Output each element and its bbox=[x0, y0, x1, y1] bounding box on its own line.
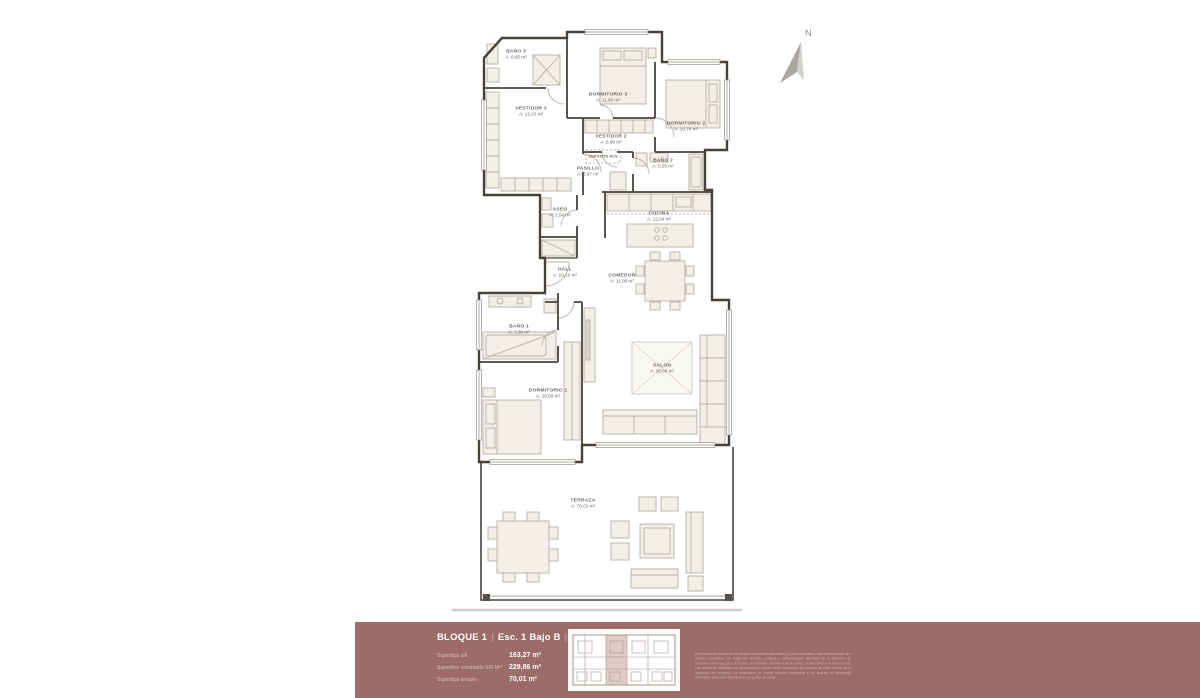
room-label-pasillo: PASILLO A: 2,87 m² bbox=[577, 165, 599, 177]
room-label-dormitorio-1: DORMITORIO 1 A: 20,58 m² bbox=[529, 387, 568, 399]
room-label-aseo: ASEO A: 2,54 m² bbox=[549, 206, 570, 218]
spec-label: Superficie terraza bbox=[437, 677, 476, 683]
spec-label: Superficie construida S/R M²* bbox=[437, 665, 503, 671]
room-label-vestidor-2: VESTIDOR 2 A: 6,49 m² bbox=[595, 133, 626, 145]
spec-value: 163,27 m² bbox=[509, 652, 541, 659]
room-label-vestidor-3: VESTIDOR 3 A: 13,20 m² bbox=[515, 105, 546, 117]
spec-value: 229,86 m² bbox=[509, 664, 541, 671]
furniture-terraza bbox=[488, 497, 703, 591]
room-label-hall: HALL A: 10,10 m² bbox=[553, 266, 577, 278]
room-label-bano-2: BAÑO 2 A: 5,55 m² bbox=[652, 157, 673, 169]
room-label-dormitorio-2: DORMITORIO 2 A: 10,70 m² bbox=[667, 120, 706, 132]
furniture-salon bbox=[584, 308, 725, 445]
furniture-vestidor-2 bbox=[585, 120, 653, 133]
page: N BAÑO 3 A: 6,65 m² DORMITORIO 3 A: 11,6… bbox=[0, 0, 1200, 698]
terrace-railing bbox=[452, 594, 742, 610]
key-plan-thumbnail bbox=[568, 629, 680, 691]
furniture-pasillo bbox=[610, 172, 626, 190]
legal-disclaimer: El presente documento es de carácter mer… bbox=[695, 652, 851, 680]
title-separator: | bbox=[487, 632, 498, 643]
floor-plan-drawing bbox=[0, 0, 1200, 698]
north-arrow-icon bbox=[780, 42, 804, 83]
footer-bar: BLOQUE 1|Esc. 1 Bajo B|escala 1:75 Super… bbox=[355, 622, 1200, 698]
unit-name: Esc. 1 Bajo B bbox=[498, 632, 561, 643]
room-label-salon: SALON A: 38,68 m² bbox=[650, 362, 674, 374]
north-label: N bbox=[805, 28, 812, 38]
room-label-comedor: COMEDOR A: 11,09 m² bbox=[608, 272, 635, 284]
furniture-comedor bbox=[636, 252, 694, 310]
room-label-bano-1: BAÑO 1 A: 7,39 m² bbox=[508, 323, 529, 335]
room-label-dormitorio-3: DORMITORIO 3 A: 11,66 m² bbox=[589, 91, 628, 103]
block-name: BLOQUE 1 bbox=[437, 632, 487, 643]
spec-label: Superficie útil bbox=[437, 653, 467, 659]
highlighted-unit bbox=[606, 635, 627, 685]
room-label-terraza: TERRAZA A: 70,01 m² bbox=[570, 497, 595, 509]
room-label-bano-3: BAÑO 3 A: 6,65 m² bbox=[505, 48, 526, 60]
room-label-cocina: COCINA A: 12,24 m² bbox=[647, 210, 671, 222]
spec-value: 70,01 m² bbox=[509, 676, 537, 683]
key-plan-drawing bbox=[568, 629, 680, 691]
room-label-deposito-acs: DEPOSITO ACS bbox=[588, 154, 617, 159]
